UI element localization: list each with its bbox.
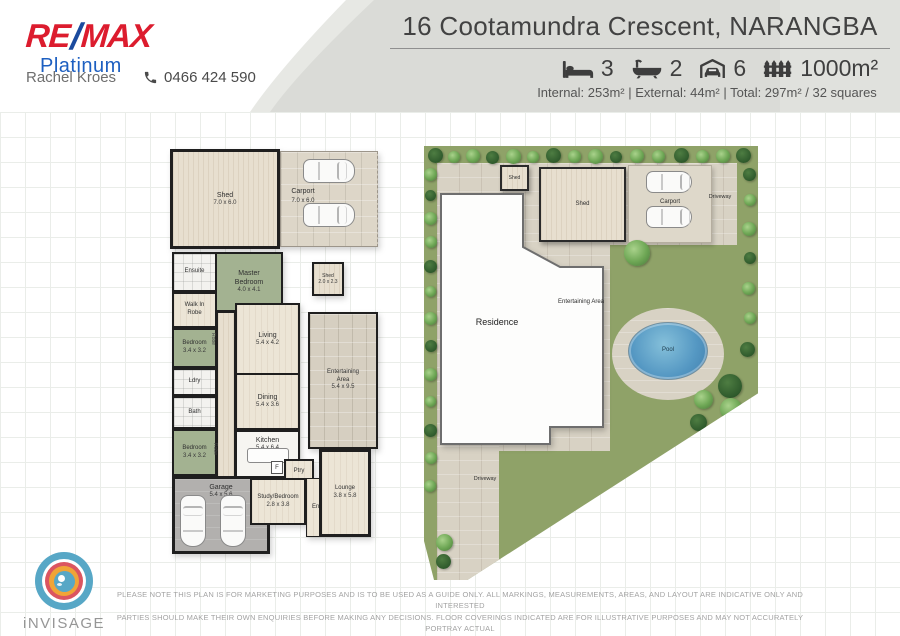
tree-icon [424, 260, 437, 273]
tree-icon [720, 398, 742, 420]
feature-land: 1000m² [763, 55, 878, 82]
plan-canvas: Shed7.0 x 6.0 Carport7.0 x 6.0 Shed2.0 x… [0, 112, 900, 636]
tree-icon [448, 151, 460, 163]
tree-icon [466, 149, 480, 163]
tree-icon [425, 286, 436, 297]
bath-icon [631, 58, 663, 80]
tree-icon [744, 252, 756, 264]
invisage-logo-block: iNVISAGE [14, 552, 114, 632]
feature-row: 3 2 [470, 55, 900, 82]
tree-icon [568, 150, 581, 163]
land-size: 1000m² [800, 55, 878, 82]
site-carport-label: Carport [640, 198, 700, 206]
tree-icon [425, 190, 436, 201]
tree-icon [486, 151, 499, 164]
residence-label: Residence [457, 317, 537, 327]
tree-icon [428, 148, 443, 163]
feature-beds: 3 [562, 55, 614, 82]
tree-icon [652, 150, 665, 163]
agent-row: Rachel Kroes 0466 424 590 [26, 69, 256, 86]
agent-phone: 0466 424 590 [143, 69, 256, 86]
tree-icon [716, 149, 730, 163]
tree-icon [424, 168, 437, 181]
tree-icon [588, 149, 603, 164]
hallway [217, 312, 235, 478]
tree-icon [694, 390, 713, 409]
tree-icon [714, 420, 732, 438]
room-shed-small: Shed2.0 x 2.3 [312, 262, 344, 296]
bed-count: 3 [601, 55, 614, 82]
tree-icon [436, 554, 451, 569]
flyer-page: RE/MAX Platinum Rachel Kroes 0466 424 59… [0, 0, 900, 636]
tree-icon [690, 414, 707, 431]
floor-plan: Shed7.0 x 6.0 Carport7.0 x 6.0 Shed2.0 x… [166, 143, 392, 567]
header: RE/MAX Platinum Rachel Kroes 0466 424 59… [0, 0, 900, 112]
room-bath: Bath [172, 396, 217, 429]
carport-label: Carport7.0 x 6.0 [282, 187, 324, 206]
phone-icon [143, 70, 158, 85]
tree-icon [425, 452, 437, 464]
room-dining: Dining5.4 x 3.6 [235, 373, 300, 430]
tree-icon [740, 342, 755, 357]
invisage-logo-icon [35, 552, 93, 610]
room-laundry: Ldry [172, 368, 217, 396]
invisage-logo-text: iNVISAGE [14, 615, 114, 632]
property-address-title: 16 Cootamundra Crescent, NARANGBA [390, 11, 890, 49]
tree-icon [424, 312, 437, 325]
tree-icon [425, 236, 437, 248]
tree-icon [436, 534, 453, 551]
remax-max: MAX [80, 17, 153, 54]
car-icon [646, 171, 692, 193]
tree-icon [424, 480, 436, 492]
room-study-bedroom: Study/Bedroom2.8 x 3.8 [250, 478, 306, 525]
tree-icon [744, 194, 756, 206]
tree-icon [425, 396, 436, 407]
area-stats: Internal: 253m² | External: 44m² | Total… [457, 85, 900, 100]
tree-icon [610, 151, 622, 163]
site-shed-small: Shed [500, 165, 529, 191]
robe-label: Robe [210, 333, 216, 345]
feature-baths: 2 [631, 55, 683, 82]
room-lounge: Lounge3.8 x 5.8 [319, 449, 371, 537]
tree-icon [630, 149, 644, 163]
tree-icon [424, 368, 437, 381]
car-icon [646, 206, 692, 228]
bath-count: 2 [670, 55, 683, 82]
tree-icon [546, 148, 561, 163]
fridge-marker: F [271, 461, 283, 474]
car-icon [180, 495, 206, 547]
room-ensuite: Ensuite [172, 252, 217, 292]
tree-icon [425, 340, 437, 352]
disclaimer-line: PARTIES SHOULD MAKE THEIR OWN ENQUIRIES … [100, 612, 820, 635]
tree-icon [744, 312, 756, 324]
driveway-bottom-label: Driveway [464, 476, 506, 483]
title-block: 16 Cootamundra Crescent, NARANGBA 3 [390, 11, 890, 100]
tree-icon [736, 148, 751, 163]
driveway-top-label: Driveway [700, 194, 740, 201]
tree-icon [674, 148, 689, 163]
tree-icon [743, 168, 756, 181]
tree-icon [718, 374, 742, 398]
site-entertaining-label: Entertaining Area [552, 298, 610, 306]
car-icon [303, 159, 355, 183]
site-plan: Residence Shed Shed Carport Driveway Ent… [424, 146, 758, 580]
fence-icon [763, 58, 793, 80]
robe-label: Robe [212, 443, 218, 455]
car-icon [303, 203, 355, 227]
remax-wordmark: RE/MAX [25, 16, 153, 53]
pool-label: Pool [662, 347, 674, 355]
pool: Pool [628, 322, 708, 380]
room-entertaining-area: Entertaining Area5.4 x 9.5 [308, 312, 378, 449]
room-living: Living5.4 x 4.2 [235, 303, 300, 375]
feature-cars: 6 [699, 55, 746, 82]
tree-icon [424, 424, 437, 437]
tree-icon [527, 151, 539, 163]
disclaimer: PLEASE NOTE THIS PLAN IS FOR MARKETING P… [100, 589, 820, 636]
tree-icon [506, 149, 521, 164]
tree-icon [742, 222, 756, 236]
bed-icon [562, 58, 594, 80]
agent-name: Rachel Kroes [26, 69, 116, 86]
tree-icon [742, 282, 755, 295]
disclaimer-line: PLEASE NOTE THIS PLAN IS FOR MARKETING P… [100, 589, 820, 612]
room-shed-large: Shed7.0 x 6.0 [170, 149, 280, 249]
room-bedroom-2: Bedroom3.4 x 3.2 [172, 429, 217, 476]
remax-re: RE [25, 17, 71, 54]
phone-number: 0466 424 590 [164, 69, 256, 86]
car-icon [220, 495, 246, 547]
car-count: 6 [733, 55, 746, 82]
car-garage-icon [699, 58, 726, 80]
tree-icon [624, 240, 650, 266]
room-walk-in-robe: Walk In Robe [172, 292, 217, 328]
tree-icon [696, 150, 709, 163]
tree-icon [424, 212, 437, 225]
